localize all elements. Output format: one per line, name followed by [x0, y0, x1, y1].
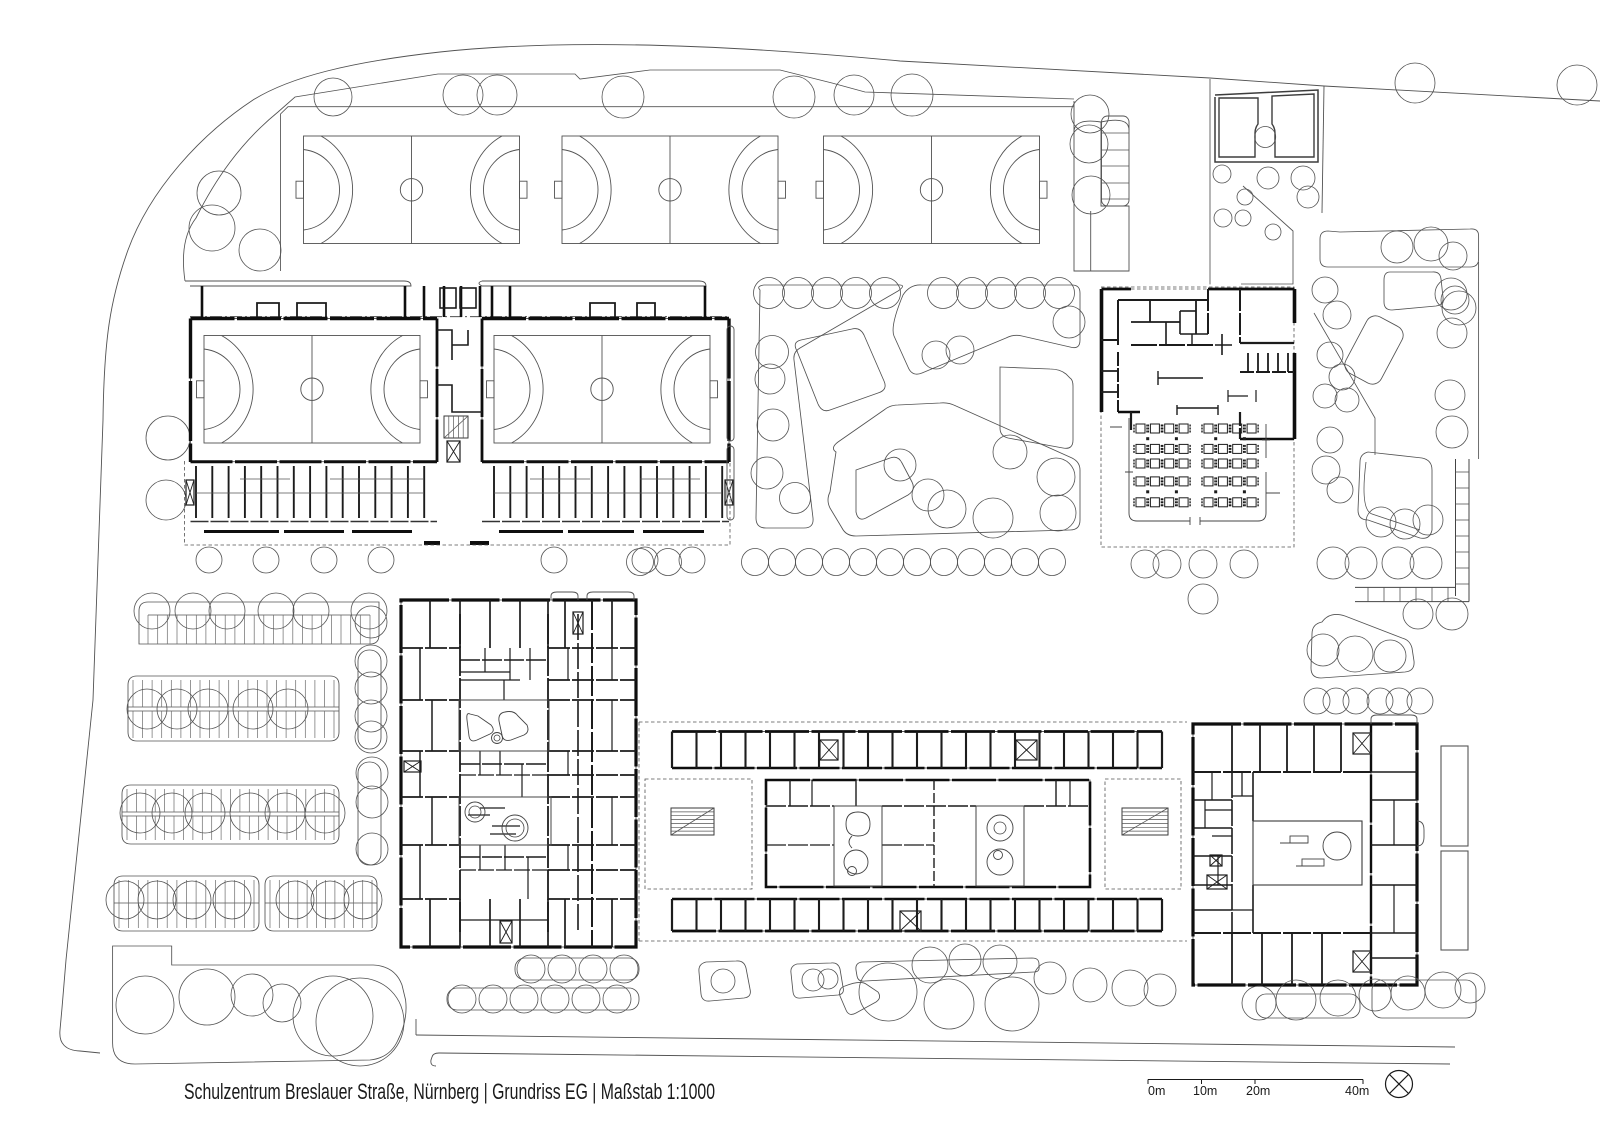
svg-text:0m: 0m [1148, 1084, 1165, 1098]
svg-text:Schulzentrum Breslauer Straße,: Schulzentrum Breslauer Straße, Nürnberg … [184, 1079, 715, 1104]
svg-text:40m: 40m [1345, 1084, 1369, 1098]
svg-text:10m: 10m [1193, 1084, 1217, 1098]
svg-text:20m: 20m [1246, 1084, 1270, 1098]
